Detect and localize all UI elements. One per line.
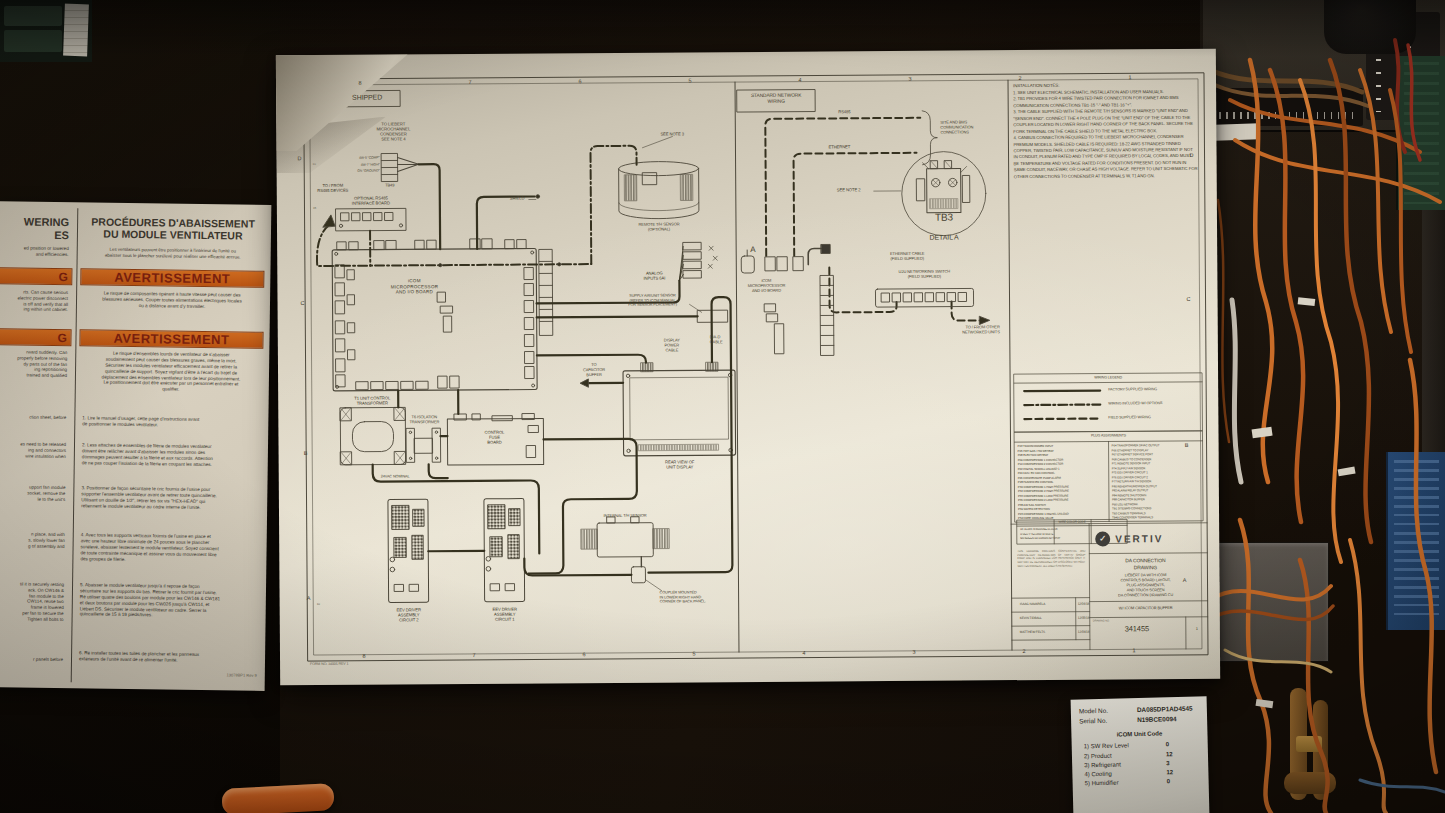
warn-left-item6: r panels before xyxy=(0,656,63,663)
warn-left-para2: rward suddenly. Can properly before remo… xyxy=(0,349,67,379)
analog-inputs-label: ANALOG INPUTS 6AI xyxy=(633,271,675,281)
ethernet-cable-label: ETHERNET CABLE (FIELD SUPPLIED) xyxy=(875,252,939,262)
warn-left-header: WERING ES xyxy=(0,215,69,241)
installation-notes-body: 1. SEE UNIT ELECTRICAL SCHEMATIC, INSTAL… xyxy=(1013,89,1198,180)
ruler-bottom-2: 2 xyxy=(1016,648,1032,655)
ruler-bottom-8: 8 xyxy=(356,653,372,660)
unit-id-label: Model No.DA085DP1AD4545 Serial No.N19BCE… xyxy=(1071,696,1210,813)
photo-scene: WERING ES ed position or lowered and eff… xyxy=(0,0,1445,813)
warn-fr-item6: 6. Ré installer toutes les tuiles de pla… xyxy=(79,650,257,664)
signature-name: ISAAC NAVARELA xyxy=(1020,603,1074,607)
ruler-top-7: 7 xyxy=(462,79,478,86)
minor-tick-10: 10 xyxy=(317,603,329,607)
signature-name: KEVIN TIDBALL xyxy=(1020,617,1074,621)
to-other-units-label: TO / FROM OTHER NETWORKED UNITS xyxy=(926,325,1000,335)
orange-cable-object xyxy=(221,783,334,813)
ruler-top-3: 3 xyxy=(902,76,918,83)
warn-left-item5: til it is securely resting ack. On CW146… xyxy=(0,581,64,622)
warn-fr-para2: Le risque d'ensembles lourds de ventilat… xyxy=(81,350,262,394)
ruler-top-5: 5 xyxy=(682,77,698,84)
zone-right-a: A xyxy=(1179,577,1189,584)
warn-fr-item4: 4. Avec tous les supports verticaux four… xyxy=(80,532,258,564)
detail-a-label: DETAIL A xyxy=(910,233,978,242)
title-block-option: W/ ICOM CAPACITOR BUFFER xyxy=(1090,606,1202,611)
warning-sheet: WERING ES ed position or lowered and eff… xyxy=(0,201,271,691)
t1-label: T1 UNIT CONTROL TRANSFORMER xyxy=(338,395,406,406)
title-block-title: DA CONNECTION DRAWING xyxy=(1089,557,1201,571)
dia-d-label: DIA-D CABLE xyxy=(710,335,736,345)
internal-sensor-label: INTERNAL T/H SENSOR xyxy=(587,514,663,519)
ruler-top-6: 6 xyxy=(572,78,588,85)
warning-banner-left-text: G xyxy=(58,330,68,344)
warning-banner-left-1: G xyxy=(0,267,72,285)
eev2-label: EEV DRIVER ASSEMBLY CIRCUIT 2 xyxy=(384,607,434,622)
remote-sensor-label: REMOTE T/H SENSOR (OPTIONAL) xyxy=(627,222,691,232)
zone-left-c: C xyxy=(298,300,308,307)
warn-fr-item1: 1. Lire le manuel d'usager, cette page d… xyxy=(82,415,260,429)
to-capacitor-label: TO CAPACITOR BUFFER xyxy=(576,363,612,378)
warn-left-item1: ction sheet, before xyxy=(0,414,66,421)
ruler-top-1: 1 xyxy=(1122,74,1138,81)
tb3-label: TB3 xyxy=(922,211,966,223)
warn-left-item3: upport fan module socket, remove the le … xyxy=(0,484,65,502)
see-note-3: SEE NOTE 3 xyxy=(660,131,704,136)
vertiv-logo-icon: ✓ xyxy=(1095,531,1110,546)
rs485-line-label: RS485 xyxy=(838,109,868,114)
zone-left-b: B xyxy=(301,450,311,457)
rear-view-label: REAR VIEW OF UNIT DISPLAY xyxy=(647,459,713,470)
rs485-board-label: OPTIONAL RS485 INTERFACE BOARD xyxy=(335,195,407,206)
t6-label: T6 ISOLATION TRANSFORMER xyxy=(400,415,448,425)
legend-options: WIRING INCLUDED W/ OPTIONS xyxy=(1108,401,1200,406)
warning-banner-fr-2: AVERTISSEMENT xyxy=(79,329,263,349)
eev1-label: EEV DRIVER ASSEMBLY CIRCUIT 1 xyxy=(480,607,530,622)
ruler-bottom-3: 3 xyxy=(906,649,922,656)
warning-banner-fr-text: AVERTISSEMENT xyxy=(113,331,229,348)
ruler-bottom-5: 5 xyxy=(686,650,702,657)
warn-footer: 13078BP1 Rev 9 xyxy=(111,671,257,678)
main-board-label: iCOM MICROPROCESSOR AND I/O BOARD xyxy=(364,278,464,295)
warn-fr-item3: 3. Positionner de façon sécuritaire le c… xyxy=(81,485,259,511)
supply-air-label: SUPPLY AIR/UNIT SENSOR (REFER TO ICOM MA… xyxy=(615,293,689,307)
coupler-label: COUPLER MOUNTED IN LOWER RIGHT HAND CORN… xyxy=(660,590,732,604)
serial-no-value: N19BCE0094 xyxy=(1137,714,1177,725)
warning-banner-fr-1: AVERTISSEMENT xyxy=(80,268,264,288)
fuse-board-label: CONTROL FUSE BOARD xyxy=(468,430,520,445)
warn-fr-item5: 5. Abaisser le module ventilateur jusqu'… xyxy=(80,582,258,620)
panel-header-shipped: SHIPPED xyxy=(334,93,400,102)
drawing-paper: SHIPPED TO LIEBERT MICROCHANNEL CONDENSE… xyxy=(276,49,1220,686)
minor-tick-15: 15 xyxy=(313,207,325,211)
condenser-note: TO LIEBERT MICROCHANNEL CONDENSER SEE NO… xyxy=(353,121,433,142)
warn-left-header-sub: ed position or lowered and efficiencies. xyxy=(0,245,69,258)
warn-fr-header: PROCÉDURES D'ABAISSEMENT DU MODULE VENTI… xyxy=(83,215,263,242)
form-number: FORM NO. 34005 REV 1 xyxy=(310,661,400,666)
a-marker: A xyxy=(750,245,762,255)
wire-color-rows: BK BLACK O ORANGE BL BLUE R RED Y YELLOW… xyxy=(1020,527,1126,542)
display-power-label: DISPLAY POWER CABLE xyxy=(656,338,688,353)
network-board-label: iCOM MICROPROCESSOR AND I/O BOARD xyxy=(737,279,795,294)
ruler-bottom-1: 1 xyxy=(1126,647,1142,654)
ruler-bottom-7: 7 xyxy=(466,652,482,659)
warning-banner-left-2: G xyxy=(0,328,72,346)
plug-table-col2: P64 TRANSFORMER 24VAC OUTPUT P66 ETHERNE… xyxy=(1112,443,1201,520)
dwg-no-value: 341455 xyxy=(1092,624,1182,634)
zone-right-b: B xyxy=(1182,442,1192,449)
zone-right-c: C xyxy=(1184,296,1194,303)
legend-field: FIELD SUPPLIED WIRING xyxy=(1108,415,1200,420)
minor-tick-16: 16 xyxy=(313,163,325,167)
sheet-number: 1 xyxy=(1186,627,1208,632)
zone-left-d: D xyxy=(295,155,305,162)
tb49-label: TB49 xyxy=(375,183,405,188)
ethernet-line-label: ETHERNET xyxy=(828,144,866,149)
warn-left-para1: rts. Can cause serious electric power di… xyxy=(0,289,68,313)
dwg-no-label: DRAWING NO. xyxy=(1093,619,1133,622)
icom-unit-code-title: iCOM Unit Code xyxy=(1079,730,1199,739)
serial-no-key: Serial No. xyxy=(1079,715,1137,726)
tb49-pin-labels: 4W-5 "COMP" 4W-7 "HIGH" GN "GROUND" xyxy=(333,155,380,175)
vertiv-brand: VERTIV xyxy=(1115,533,1195,546)
code-row-value: 12 xyxy=(1166,768,1173,777)
shield-label: SHIELD xyxy=(510,195,536,200)
ruler-top-4: 4 xyxy=(792,77,808,84)
code-row-value: 3 xyxy=(1166,759,1170,768)
warn-left-item4: n place, and with s, slowly lower fan g … xyxy=(0,531,65,549)
zone-right-d: D xyxy=(1187,152,1197,159)
warn-fr-header-sub: Les ventilateurs peuvent être positionne… xyxy=(83,246,263,260)
ruler-top-8: 8 xyxy=(352,80,368,87)
plug-table-col1: P03 TRANSFORMER INPUT P05 HOT GAS / HW R… xyxy=(1018,444,1107,521)
ruler-bottom-6: 6 xyxy=(576,651,592,658)
warning-banner-fr-text: AVERTISSEMENT xyxy=(114,270,230,287)
site-bms-label: SITE AND BMS COMMUNICATION CONNECTIONS xyxy=(940,120,1002,135)
code-row-value: 0 xyxy=(1167,778,1171,787)
zone-left-a: A xyxy=(304,595,314,602)
see-note-2: SEE NOTE 2 xyxy=(837,187,879,192)
wire-color-title: WIRE COLOR CODE xyxy=(1017,520,1127,524)
rs485-devices-label: TO / FROM RS485 DEVICES xyxy=(303,183,363,193)
warn-left-item2: es need to be released ing and connector… xyxy=(0,441,66,459)
warn-fr-para1: Le risque de composantes opérant à haute… xyxy=(82,290,262,310)
24vac-label: 24VAC NOMINAL xyxy=(381,474,433,479)
warning-banner-left-text: G xyxy=(58,269,68,283)
warn-fr-item2: 2. Less attaches de ensembles de filerie… xyxy=(82,442,260,468)
ruler-bottom-4: 4 xyxy=(796,650,812,657)
signature-name: MATTHEW FELTS xyxy=(1020,631,1074,635)
legend-factory: FACTORY SUPPLIED WIRING xyxy=(1108,387,1200,392)
u2u-switch-label: U2U NETWORKING SWITCH (FIELD SUPPLIED) xyxy=(875,269,973,279)
ruler-top-2: 2 xyxy=(1012,75,1028,82)
code-row-value: 0 xyxy=(1166,741,1170,750)
code-row-key: 5) Humidifier xyxy=(1081,778,1167,789)
proprietary-note: THIS DRAWING CONTAINS CONFIDENTIAL AND P… xyxy=(1017,550,1085,569)
code-row-value: 12 xyxy=(1166,750,1173,759)
panel-header-network: STANDARD NETWORK WIRING xyxy=(737,93,815,105)
